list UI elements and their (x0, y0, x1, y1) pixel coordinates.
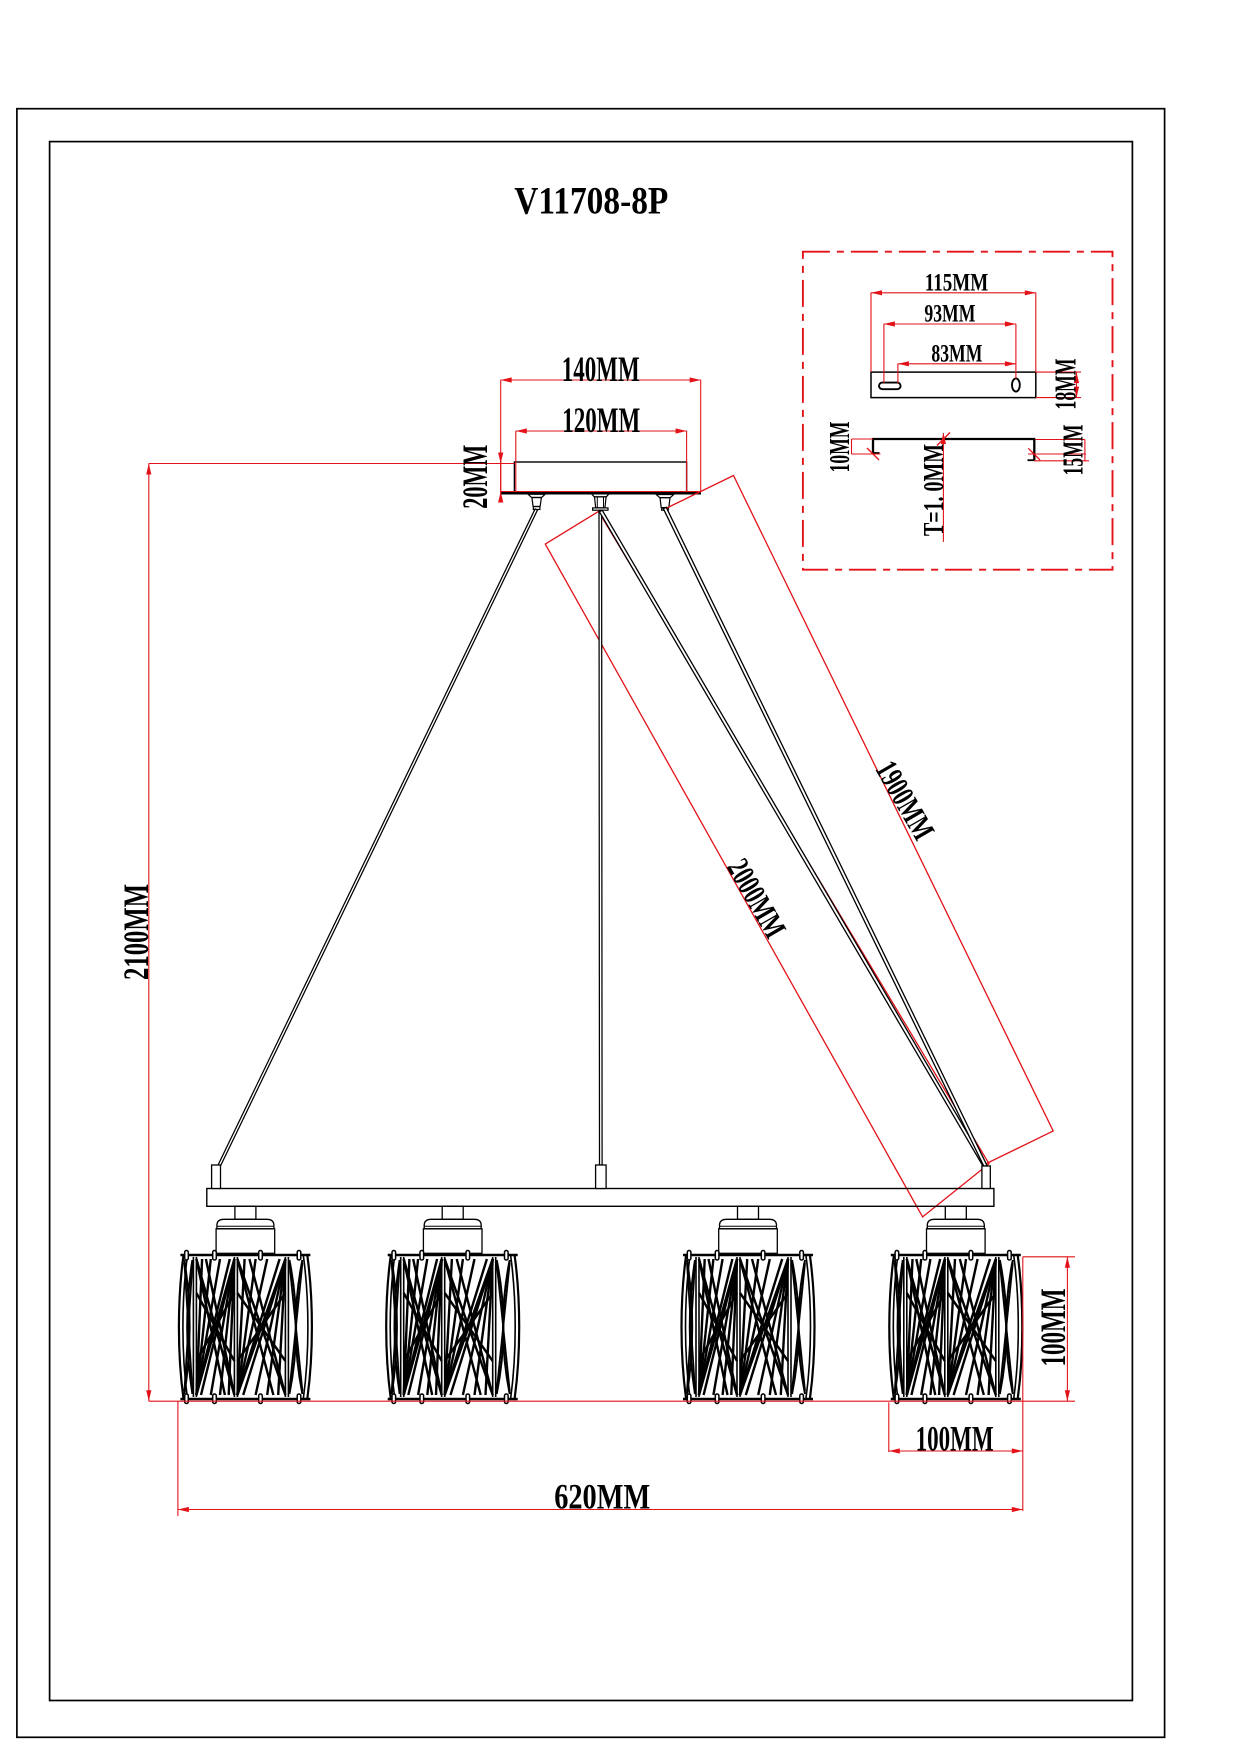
svg-text:115MM: 115MM (925, 269, 989, 296)
svg-text:18MM: 18MM (1048, 359, 1083, 410)
svg-text:93MM: 93MM (924, 301, 975, 328)
svg-text:100MM: 100MM (1033, 1289, 1073, 1367)
svg-text:100MM: 100MM (916, 1419, 994, 1459)
svg-text:T=1. 0MM: T=1. 0MM (918, 444, 950, 536)
svg-text:V11708-8P: V11708-8P (514, 180, 668, 223)
svg-text:83MM: 83MM (931, 340, 982, 367)
svg-text:20MM: 20MM (455, 445, 495, 509)
svg-text:120MM: 120MM (562, 400, 640, 440)
svg-text:2100MM: 2100MM (116, 884, 156, 980)
svg-text:15MM: 15MM (1059, 424, 1090, 475)
svg-text:140MM: 140MM (562, 349, 640, 389)
svg-text:620MM: 620MM (554, 1477, 650, 1517)
svg-text:10MM: 10MM (825, 421, 856, 472)
